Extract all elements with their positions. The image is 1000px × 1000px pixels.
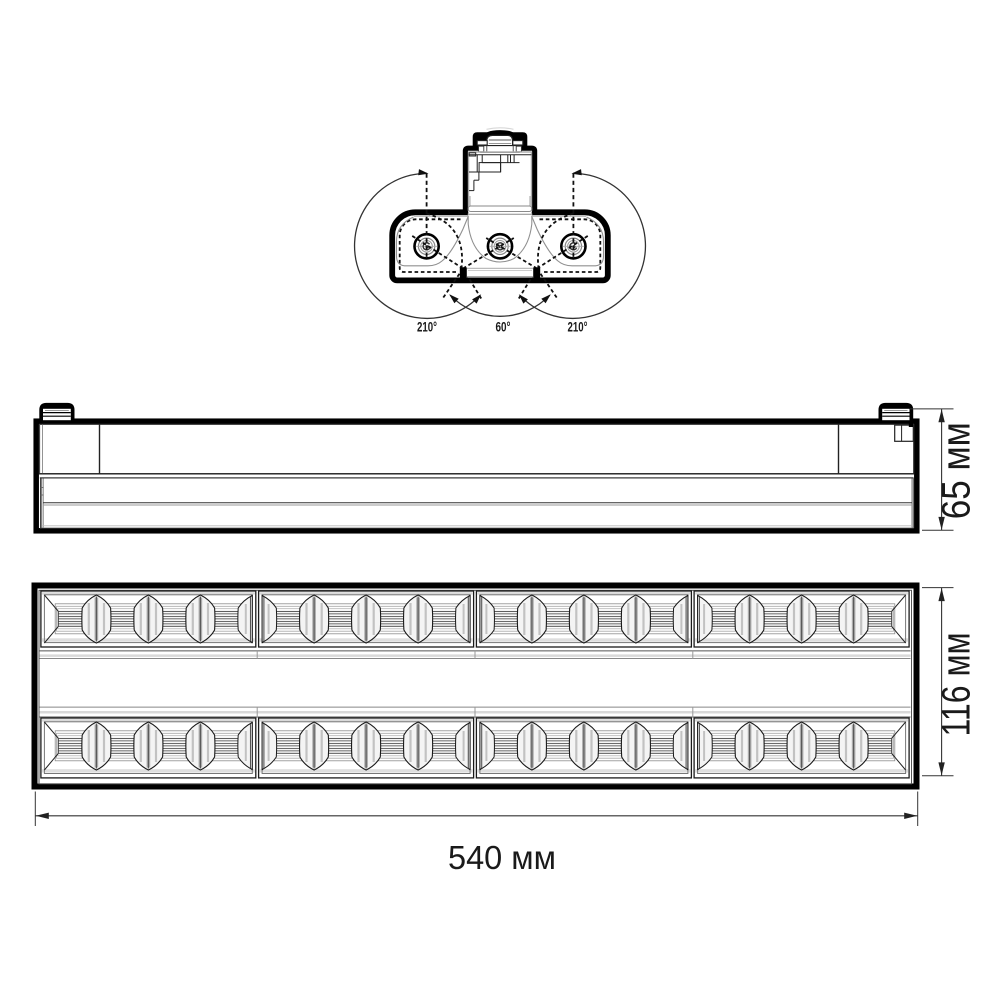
svg-text:210°: 210°	[568, 319, 588, 334]
svg-text:65 мм: 65 мм	[935, 422, 979, 519]
svg-text:60°: 60°	[496, 319, 511, 334]
svg-text:540 мм: 540 мм	[448, 839, 556, 876]
svg-text:116 мм: 116 мм	[935, 633, 979, 737]
svg-text:210°: 210°	[417, 319, 437, 334]
